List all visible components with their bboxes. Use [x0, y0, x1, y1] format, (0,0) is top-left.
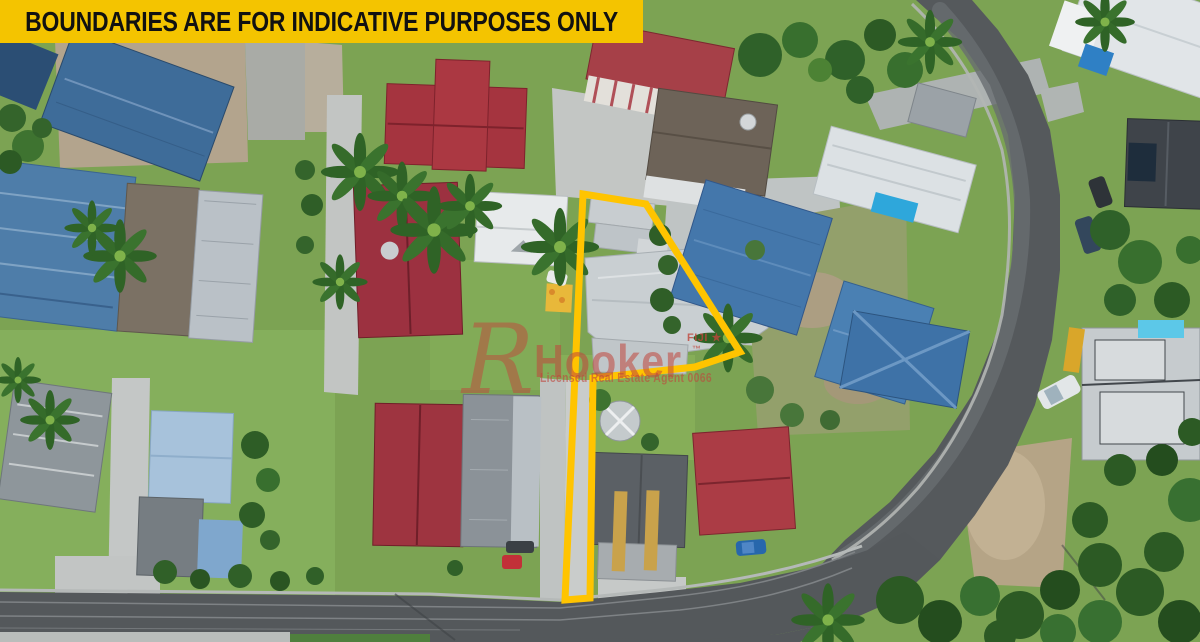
building-red-bottom [693, 427, 796, 535]
aerial-scene [0, 0, 1200, 642]
building-dark-roof-walkways [589, 452, 687, 581]
aerial-photo: R Hooker FIJI ★ ™ Licensed Real Estate A… [0, 0, 1200, 642]
disclaimer-banner: BOUNDARIES ARE FOR INDICATIVE PURPOSES O… [0, 0, 643, 43]
construction-site [1063, 320, 1200, 460]
disclaimer-text: BOUNDARIES ARE FOR INDICATIVE PURPOSES O… [25, 6, 618, 38]
